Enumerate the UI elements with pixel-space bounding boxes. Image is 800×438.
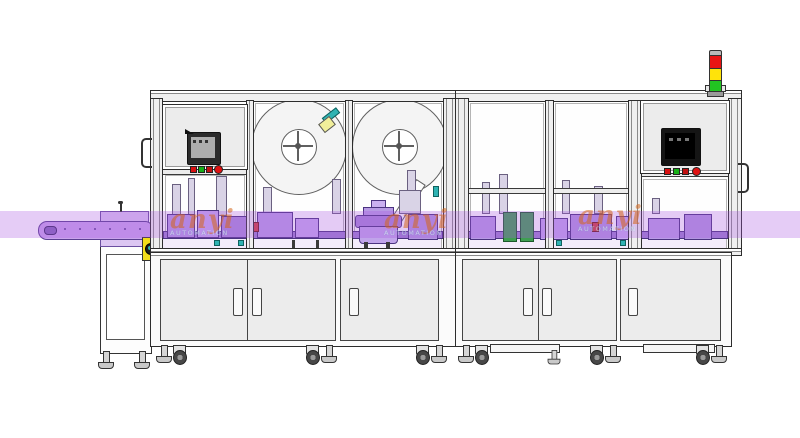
machineA-post-mid2 bbox=[345, 100, 353, 252]
leveling-foot bbox=[605, 345, 621, 365]
belt-dot bbox=[124, 228, 126, 230]
machineB-button-3 bbox=[682, 168, 689, 175]
caster-wheel bbox=[304, 345, 320, 365]
leveling-foot bbox=[156, 345, 172, 365]
door-handle bbox=[233, 288, 243, 316]
machinery-block-top bbox=[399, 190, 421, 214]
reel2-guide bbox=[433, 186, 439, 197]
caster-wheel bbox=[588, 345, 604, 365]
teal-accent bbox=[238, 240, 244, 246]
machineB-post-mid1 bbox=[545, 100, 554, 252]
machinery-block bbox=[470, 216, 496, 240]
hopper-sensor-tip bbox=[118, 201, 123, 204]
leveling-foot-small bbox=[548, 350, 561, 366]
door-handle bbox=[542, 288, 552, 316]
reel1-center bbox=[295, 143, 301, 149]
machineB-hmi-screen bbox=[665, 133, 695, 159]
machinery-pole bbox=[188, 178, 195, 216]
hopper-sensor-pin bbox=[120, 203, 122, 212]
caster-wheel bbox=[171, 345, 187, 365]
machineB-button-1 bbox=[664, 168, 671, 175]
gripper-unit-green bbox=[503, 212, 517, 242]
machine-line-drawing: anyi AUTOMATION anyi AUTOMATION anyi AUT… bbox=[0, 0, 800, 438]
machineA-door-handle-left bbox=[141, 138, 152, 168]
teal-accent bbox=[620, 240, 626, 246]
teal-accent bbox=[556, 240, 562, 246]
machineB-estop-button bbox=[692, 167, 701, 176]
door-handle bbox=[349, 288, 359, 316]
gripper-unit-green bbox=[520, 212, 534, 242]
machineA-top-beam bbox=[150, 90, 457, 102]
caster-wheel bbox=[473, 345, 489, 365]
caster-wheel bbox=[694, 345, 710, 365]
machinery-block bbox=[408, 214, 438, 240]
machineB-hmi-screen-marks bbox=[669, 138, 689, 141]
belt-dot bbox=[94, 228, 96, 230]
leveling-foot bbox=[458, 345, 474, 365]
belt-dot bbox=[109, 228, 111, 230]
machineA-button-3 bbox=[206, 166, 213, 173]
machinery-pole bbox=[172, 184, 181, 216]
caster-wheel bbox=[414, 345, 430, 365]
machineA-button-1 bbox=[190, 166, 197, 173]
conveyor-pedestal-inner bbox=[106, 254, 145, 340]
pedestal-foot bbox=[98, 351, 114, 371]
machinery-block bbox=[257, 212, 293, 238]
machinery-block bbox=[684, 214, 712, 240]
machineB-door-handle-right bbox=[738, 163, 749, 193]
belt-dot bbox=[64, 228, 66, 230]
belt-dot bbox=[139, 228, 141, 230]
machineB-button-2 bbox=[673, 168, 680, 175]
leveling-foot bbox=[431, 345, 447, 365]
machinery-block bbox=[167, 214, 195, 238]
door-handle bbox=[523, 288, 533, 316]
teal-accent bbox=[214, 240, 220, 246]
machinery-pole bbox=[407, 170, 416, 192]
pedestal-foot bbox=[134, 351, 150, 371]
machinery-block bbox=[197, 210, 219, 238]
belt-dot bbox=[79, 228, 81, 230]
machinery-pole bbox=[562, 180, 570, 214]
machineA-hmi-screen-marks bbox=[193, 140, 211, 143]
machinery-pole bbox=[499, 174, 508, 214]
machineB-post-left bbox=[455, 98, 469, 253]
machineA-estop-button bbox=[214, 165, 223, 174]
machinery-pole bbox=[482, 182, 490, 214]
door-handle bbox=[252, 288, 262, 316]
door-handle bbox=[628, 288, 638, 316]
machinery-block bbox=[648, 218, 680, 240]
machinery-block bbox=[570, 214, 612, 240]
leveling-foot bbox=[321, 345, 337, 365]
leveling-foot bbox=[711, 345, 727, 365]
machineA-button-2 bbox=[198, 166, 205, 173]
reel2-center bbox=[396, 143, 402, 149]
machinery-block bbox=[295, 218, 319, 238]
belt-end-cap bbox=[44, 226, 57, 235]
red-accent bbox=[592, 222, 599, 232]
signal-tower-base bbox=[707, 91, 724, 97]
machinery-pole bbox=[652, 198, 660, 214]
machinery-pole bbox=[332, 179, 341, 214]
